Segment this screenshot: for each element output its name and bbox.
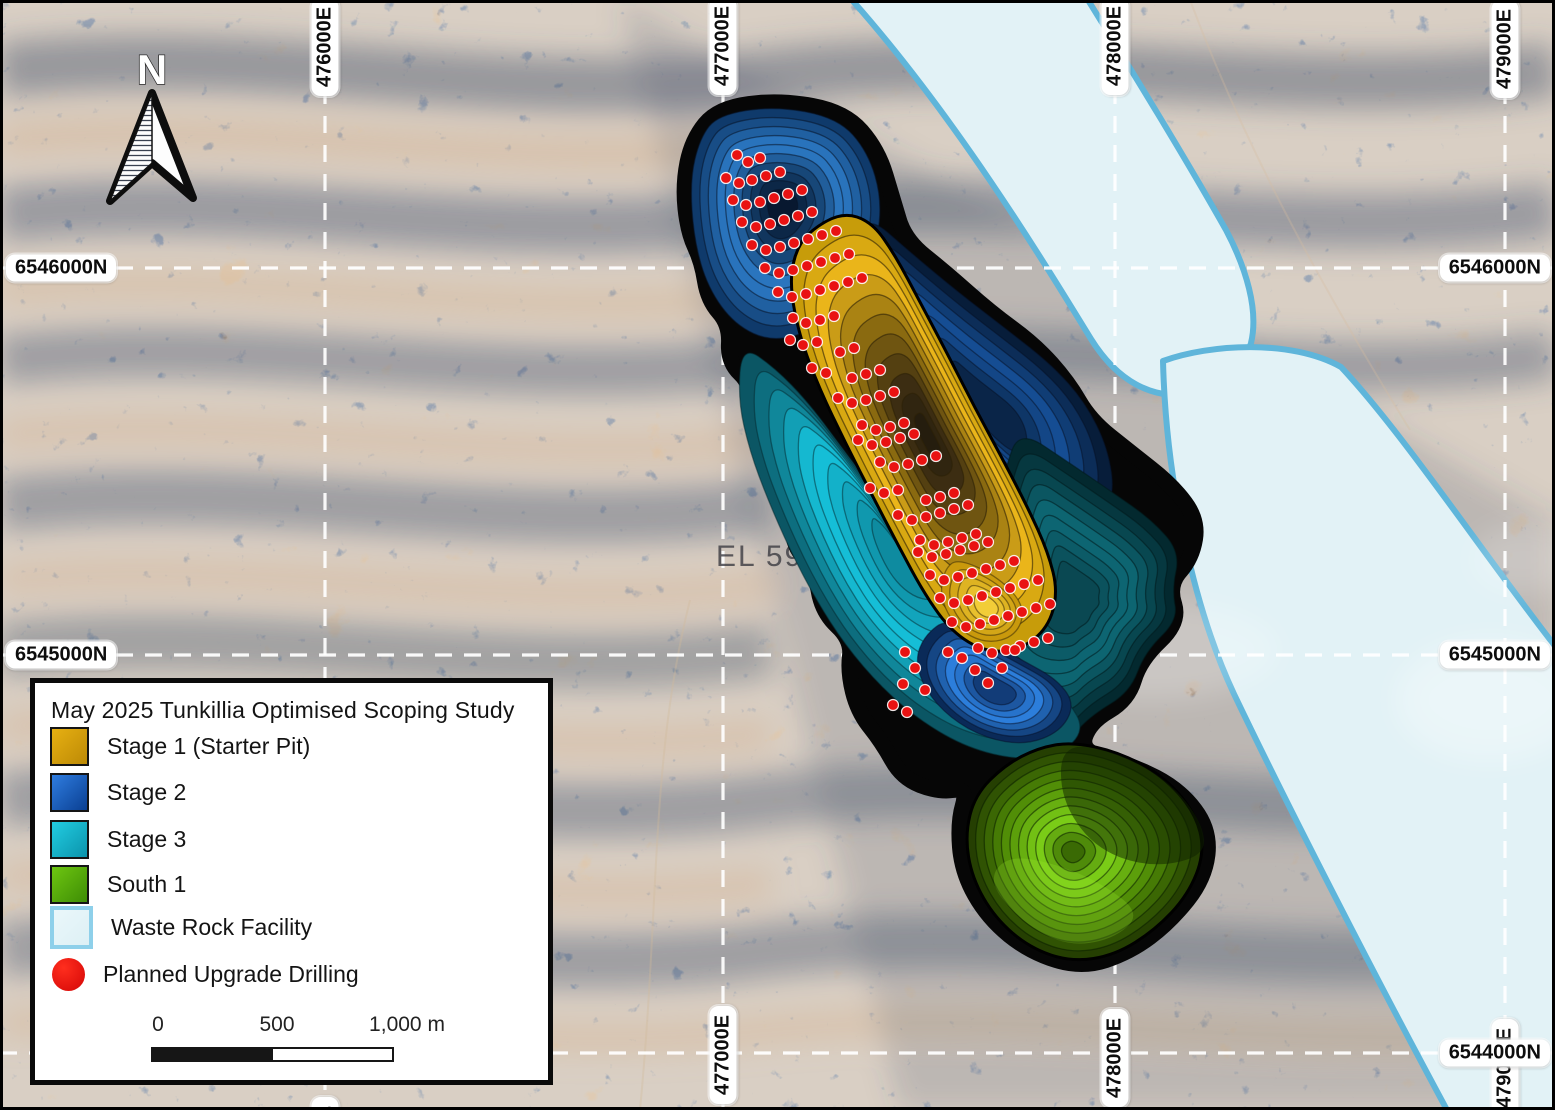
legend-item-south-1: South 1 [50,865,186,903]
easting-label-477000e-bottom: 477000E [710,1006,737,1104]
northing-label-6545000n-left: 6545000N [6,642,116,669]
planned-drill-hole [743,157,754,168]
planned-drill-hole [829,281,840,292]
scale-bar [151,1047,394,1062]
planned-drill-hole [925,570,936,581]
planned-drill-hole [807,207,818,218]
planned-drill-hole [821,368,832,379]
planned-drill-hole [1005,583,1016,594]
planned-drill-hole [816,257,827,268]
planned-drill-hole [955,545,966,556]
planned-drill-hole [760,263,771,274]
planned-drill-hole [830,253,841,264]
planned-drill-hole [865,483,876,494]
planned-drill-hole [815,315,826,326]
planned-drill-hole [734,178,745,189]
planned-drill-hole [847,373,858,384]
planned-drill-hole [1010,645,1021,656]
planned-drill-hole [1019,579,1030,590]
drill-hole-symbol [52,958,85,991]
planned-drill-hole [812,337,823,348]
north-letter: N [137,48,167,93]
planned-drill-hole [1031,603,1042,614]
planned-drill-hole [881,437,892,448]
legend-item-planned-upgrade-drilling: Planned Upgrade Drilling [50,955,359,993]
planned-drill-hole [769,193,780,204]
planned-drill-hole [949,504,960,515]
planned-drill-hole [900,647,911,658]
planned-drill-hole [741,200,752,211]
planned-drill-hole [953,572,964,583]
planned-drill-hole [721,173,732,184]
legend-item-stage-2: Stage 2 [50,773,186,811]
planned-drill-hole [861,395,872,406]
planned-drill-hole [977,591,988,602]
planned-drill-hole [989,615,1000,626]
planned-drill-hole [857,273,868,284]
planned-drill-hole [871,425,882,436]
planned-drill-hole [789,238,800,249]
planned-drill-hole [737,217,748,228]
planned-drill-hole [921,495,932,506]
planned-drill-hole [773,287,784,298]
planned-drill-hole [927,552,938,563]
planned-drill-hole [995,560,1006,571]
planned-drill-hole [867,440,878,451]
planned-drill-hole [801,318,812,329]
planned-drill-hole [732,150,743,161]
planned-drill-hole [875,365,886,376]
planned-drill-hole [787,292,798,303]
legend-item-waste-rock-facility: Waste Rock Facility [50,908,312,946]
planned-drill-hole [893,510,904,521]
planned-drill-hole [907,515,918,526]
planned-drill-hole [853,435,864,446]
planned-drill-hole [1033,575,1044,586]
planned-drill-hole [802,261,813,272]
easting-label-478000e-top: 478000E [1102,0,1129,95]
scale-bar-empty-half [273,1049,393,1060]
planned-drill-hole [835,347,846,358]
planned-drill-hole [885,422,896,433]
northing-label-6546000n-left: 6546000N [6,255,116,282]
planned-drill-hole [947,617,958,628]
waste-rock-swatch [50,906,93,949]
planned-drill-hole [921,512,932,523]
planned-drill-hole [981,564,992,575]
planned-drill-hole [875,391,886,402]
planned-drill-hole [849,343,860,354]
planned-drill-hole [775,167,786,178]
planned-drill-hole [935,492,946,503]
stage-2-swatch [50,773,89,812]
planned-drill-hole [747,240,758,251]
planned-drill-hole [861,369,872,380]
planned-drill-hole [931,451,942,462]
planned-drill-hole [807,363,818,374]
planned-drill-hole [761,245,772,256]
planned-drill-hole [788,313,799,324]
northing-label-6545000n-right: 6545000N [1440,642,1550,669]
planned-drill-hole [775,242,786,253]
planned-drill-hole [1009,556,1020,567]
planned-drill-hole [970,665,981,676]
planned-drill-hole [774,268,785,279]
planned-drill-hole [963,595,974,606]
planned-drill-hole [1003,611,1014,622]
planned-drill-hole [961,622,972,633]
easting-label-476000e-bottom-partial: 476000E [312,1097,339,1110]
planned-drill-hole [983,537,994,548]
planned-drill-hole [917,455,928,466]
planned-drill-hole [803,234,814,245]
easting-label-479000e-top: 479000E [1492,0,1519,98]
planned-drill-hole [949,488,960,499]
planned-drill-hole [1043,633,1054,644]
planned-drill-hole [831,226,842,237]
planned-drill-hole [913,547,924,558]
planned-drill-hole [728,195,739,206]
stage-1-swatch [50,727,89,766]
planned-drill-hole [801,289,812,300]
planned-drill-hole [903,459,914,470]
planned-drill-hole [888,700,899,711]
planned-drill-hole [902,707,913,718]
legend-item-stage-1: Stage 1 (Starter Pit) [50,727,310,765]
planned-drill-hole [879,488,890,499]
planned-drill-hole [957,533,968,544]
planned-drill-hole [915,535,926,546]
planned-drill-hole [793,211,804,222]
planned-drill-hole [963,500,974,511]
planned-drill-hole [893,485,904,496]
planned-drill-hole [895,433,906,444]
planned-drill-hole [857,420,868,431]
planned-drill-hole [969,541,980,552]
planned-drill-hole [941,549,952,560]
planned-drill-hole [751,222,762,233]
planned-drill-hole [943,647,954,658]
planned-drill-hole [909,429,920,440]
planned-drill-hole [844,249,855,260]
planned-drill-hole [949,598,960,609]
planned-drill-hole [875,457,886,468]
scale-tick-500: 500 [259,1013,294,1037]
planned-drill-hole [755,153,766,164]
planned-drill-hole [975,619,986,630]
planned-drill-hole [765,219,776,230]
planned-drill-hole [929,540,940,551]
planned-drill-hole [910,663,921,674]
planned-drill-hole [783,189,794,200]
planned-drill-hole [997,663,1008,674]
planned-drill-hole [991,587,1002,598]
planned-drill-hole [755,197,766,208]
planned-drill-hole [798,340,809,351]
planned-drill-hole [815,285,826,296]
planned-drill-hole [797,185,808,196]
legend: May 2025 Tunkillia Optimised Scoping Stu… [30,678,553,1085]
planned-drill-hole [987,648,998,659]
planned-drill-hole [817,230,828,241]
planned-drill-hole [935,508,946,519]
northing-label-6546000n-right: 6546000N [1440,255,1550,282]
planned-drill-hole [847,398,858,409]
easting-label-476000e-top: 476000E [312,0,339,96]
easting-label-477000e-top: 477000E [710,0,737,95]
planned-drill-hole [935,593,946,604]
planned-drill-hole [957,653,968,664]
planned-drill-hole [843,277,854,288]
legend-title: May 2025 Tunkillia Optimised Scoping Stu… [51,697,515,724]
planned-drill-hole [1017,607,1028,618]
planned-drill-hole [785,335,796,346]
planned-drill-hole [983,678,994,689]
stage-3-swatch [50,820,89,859]
planned-drill-hole [1045,599,1056,610]
south-1-swatch [50,865,89,904]
planned-drill-hole [788,265,799,276]
planned-drill-hole [829,311,840,322]
legend-item-stage-3: Stage 3 [50,820,186,858]
planned-drill-hole [1029,637,1040,648]
north-arrow: N [105,48,200,218]
planned-drill-hole [939,575,950,586]
planned-drill-hole [898,679,909,690]
planned-drill-hole [833,393,844,404]
planned-drill-hole [889,462,900,473]
planned-drill-hole [971,529,982,540]
planned-drill-hole [747,175,758,186]
planned-drill-hole [943,537,954,548]
easting-label-478000e-bottom: 478000E [1102,1009,1129,1107]
scale-tick-0: 0 [152,1013,164,1037]
planned-drill-hole [967,568,978,579]
planned-drill-hole [973,643,984,654]
planned-drill-hole [761,171,772,182]
planned-drill-hole [920,685,931,696]
planned-drill-hole [779,215,790,226]
planned-drill-hole [889,387,900,398]
scoping-study-map: EL 590 476000E 477000E 478000E 479000E 4… [0,0,1555,1110]
scale-tick-1000m: 1,000 m [369,1013,445,1037]
northing-label-6544000n-right: 6544000N [1440,1040,1550,1067]
planned-drill-hole [899,418,910,429]
scale-bar-filled-half [153,1049,273,1060]
